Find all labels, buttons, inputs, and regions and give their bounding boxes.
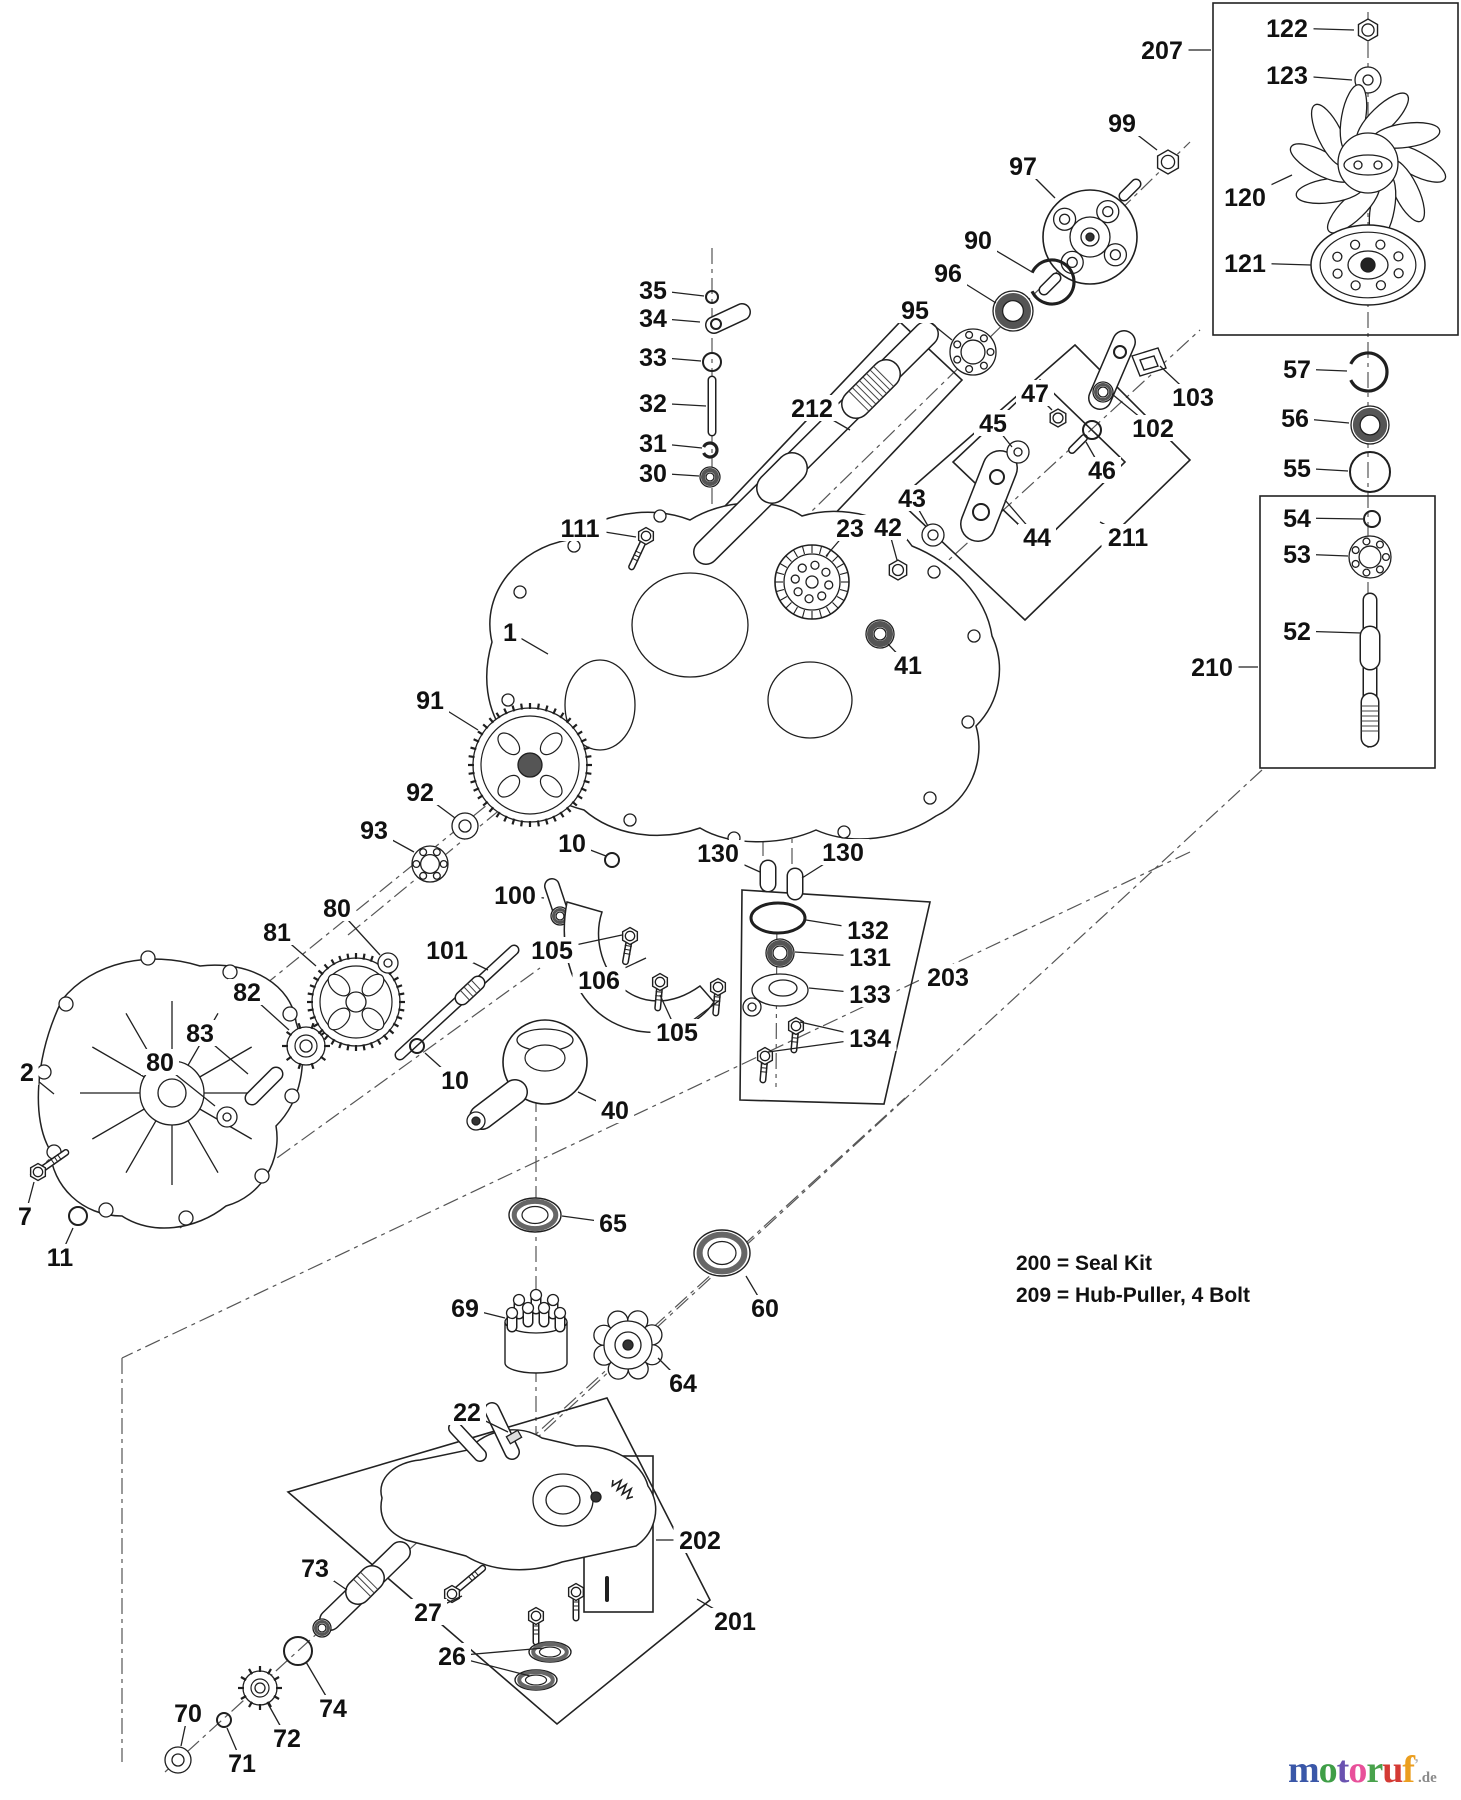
svg-text:133: 133 (849, 981, 891, 1009)
svg-text:43: 43 (898, 485, 926, 513)
bearing-95 (950, 329, 996, 375)
legend-notes: 200 = Seal Kit 209 = Hub-Puller, 4 Bolt (1016, 1248, 1250, 1312)
logo-letter: u (1382, 1749, 1402, 1791)
callout-131: 131 (795, 944, 897, 972)
nut-47 (1050, 409, 1066, 427)
callout-31: 31 (634, 430, 702, 458)
callout-44: 44 (1005, 500, 1056, 552)
svg-text:54: 54 (1283, 505, 1311, 533)
callout-210: 210 (1186, 654, 1259, 682)
callout-90: 90 (959, 227, 1032, 272)
callout-201: 201 (697, 1599, 762, 1636)
snapring-57 (1351, 353, 1387, 391)
svg-text:212: 212 (791, 395, 833, 423)
callout-99: 99 (1103, 110, 1157, 150)
svg-text:203: 203 (927, 964, 969, 992)
callout-64: 64 (658, 1358, 702, 1398)
washer-92 (452, 813, 478, 839)
svg-text:81: 81 (263, 919, 291, 947)
svg-text:101: 101 (426, 937, 468, 965)
callout-60: 60 (746, 1276, 784, 1323)
shaft-52-spline (1362, 702, 1379, 738)
hub-97 (1043, 184, 1137, 290)
svg-text:111: 111 (561, 515, 600, 543)
nut-99 (1158, 150, 1179, 174)
svg-text:31: 31 (639, 430, 667, 458)
ball-202 (591, 1492, 601, 1502)
shaft-212-spline (849, 367, 894, 412)
nut-122 (1358, 19, 1377, 41)
callout-92: 92 (401, 779, 455, 818)
washer-74 (284, 1637, 312, 1665)
callout-10: 10 (425, 1053, 474, 1095)
svg-text:93: 93 (360, 817, 388, 845)
callout-121: 121 (1219, 250, 1312, 278)
svg-text:34: 34 (639, 305, 667, 333)
svg-text:47: 47 (1021, 380, 1049, 408)
cup-26-2 (515, 1670, 557, 1690)
svg-text:69: 69 (451, 1295, 479, 1323)
callout-69: 69 (446, 1295, 505, 1323)
svg-text:99: 99 (1108, 110, 1136, 138)
brake-lever-2 (455, 1428, 480, 1455)
callout-123: 123 (1261, 62, 1353, 90)
shaft-212-collar (772, 468, 792, 488)
svg-text:26: 26 (438, 1643, 466, 1671)
logo-letter: r (1366, 1749, 1382, 1791)
svg-text:130: 130 (822, 839, 864, 867)
svg-text:202: 202 (679, 1527, 721, 1555)
callout-134: 134 (768, 1022, 897, 1053)
svg-text:74: 74 (319, 1695, 347, 1723)
svg-text:120: 120 (1224, 184, 1266, 212)
svg-text:207: 207 (1141, 37, 1183, 65)
callout-72: 72 (267, 1702, 306, 1753)
svg-text:45: 45 (979, 410, 1007, 438)
svg-text:35: 35 (639, 277, 667, 305)
callout-33: 33 (634, 344, 701, 372)
svg-text:56: 56 (1281, 405, 1309, 433)
callout-91: 91 (411, 687, 478, 730)
callout-101: 101 (421, 937, 489, 970)
svg-text:71: 71 (228, 1750, 256, 1778)
callouts: 2071221231201219997909695575655545352210… (14, 15, 1364, 1778)
logo-letter: t (1337, 1749, 1349, 1791)
svg-text:106: 106 (578, 967, 620, 995)
svg-text:57: 57 (1283, 356, 1311, 384)
legend-note-seal-kit: 200 = Seal Kit (1016, 1248, 1250, 1280)
svg-text:7: 7 (18, 1203, 32, 1231)
logo-suffix: .de (1418, 1770, 1437, 1786)
svg-text:64: 64 (669, 1370, 697, 1398)
svg-text:83: 83 (186, 1020, 214, 1048)
svg-text:46: 46 (1088, 457, 1116, 485)
oring-132 (751, 903, 805, 933)
svg-text:40: 40 (601, 1097, 629, 1125)
svg-text:123: 123 (1266, 62, 1308, 90)
seal-41 (866, 620, 894, 648)
svg-text:90: 90 (964, 227, 992, 255)
washer-70 (165, 1747, 191, 1773)
svg-text:210: 210 (1191, 654, 1233, 682)
callout-203: 203 (922, 964, 975, 992)
bolt-27 (445, 1568, 483, 1602)
logo-letter: f (1402, 1749, 1414, 1791)
svg-text:41: 41 (894, 652, 922, 680)
retainer-133-foot (743, 998, 761, 1016)
svg-text:201: 201 (714, 1608, 756, 1636)
callout-71: 71 (223, 1728, 261, 1778)
svg-text:97: 97 (1009, 153, 1037, 181)
rotor-64 (594, 1311, 662, 1379)
housing-1-bore-main (632, 573, 748, 677)
callout-7: 7 (14, 1182, 37, 1231)
pump-40 (467, 1020, 587, 1130)
svg-text:55: 55 (1283, 455, 1311, 483)
callout-97: 97 (1004, 153, 1055, 198)
clip-31 (704, 443, 717, 457)
callout-46: 46 (1083, 442, 1121, 485)
screw-134-2 (758, 1048, 773, 1080)
callout-40: 40 (578, 1092, 634, 1125)
logo-wordmark: motoruf (1288, 1749, 1414, 1791)
legend-note-hub-puller: 209 = Hub-Puller, 4 Bolt (1016, 1280, 1250, 1312)
cup-26-1 (529, 1642, 571, 1662)
block-69 (505, 1290, 567, 1374)
svg-text:130: 130 (697, 840, 739, 868)
retainer-133-hole (769, 980, 797, 996)
lever-102-bushing (1093, 382, 1113, 402)
callout-53: 53 (1278, 541, 1348, 569)
svg-text:80: 80 (146, 1049, 174, 1077)
callout-35: 35 (634, 277, 704, 305)
svg-text:102: 102 (1132, 415, 1174, 443)
ring-11 (69, 1207, 87, 1225)
svg-text:134: 134 (849, 1025, 891, 1053)
svg-text:105: 105 (656, 1019, 698, 1047)
svg-text:10: 10 (558, 830, 586, 858)
svg-text:122: 122 (1266, 15, 1308, 43)
svg-text:72: 72 (273, 1725, 301, 1753)
svg-text:96: 96 (934, 260, 962, 288)
shaft-73-tip (313, 1619, 331, 1637)
callout-132: 132 (806, 917, 895, 945)
svg-text:1: 1 (503, 619, 517, 647)
callout-103: 103 (1160, 366, 1220, 412)
housing-1-bore-side (768, 662, 852, 738)
poppet-26-1 (569, 1584, 584, 1619)
svg-text:82: 82 (233, 979, 261, 1007)
sprocket-72 (238, 1666, 282, 1710)
svg-text:91: 91 (416, 687, 444, 715)
svg-text:33: 33 (639, 344, 667, 372)
callout-34: 34 (634, 305, 700, 333)
callout-32: 32 (634, 390, 706, 418)
construction-lines (30, 12, 1368, 1772)
callout-55: 55 (1278, 455, 1348, 483)
callout-45: 45 (974, 410, 1012, 447)
svg-text:100: 100 (494, 882, 536, 910)
callout-133: 133 (809, 981, 897, 1009)
shaft-73-spline (354, 1572, 378, 1596)
svg-text:70: 70 (174, 1700, 202, 1728)
svg-text:32: 32 (639, 390, 667, 418)
svg-text:131: 131 (849, 944, 891, 972)
pulley-121 (1311, 225, 1425, 305)
svg-text:60: 60 (751, 1295, 779, 1323)
screw-105-3 (711, 979, 726, 1013)
callout-130: 130 (692, 840, 761, 872)
callout-105: 105 (526, 935, 623, 965)
svg-text:42: 42 (874, 514, 902, 542)
parts-diagram-page: 2071221231201219997909695575655545352210… (0, 0, 1461, 1800)
screw-105-1 (623, 928, 638, 962)
callout-30: 30 (634, 460, 699, 488)
svg-text:22: 22 (453, 1399, 481, 1427)
svg-text:211: 211 (1108, 524, 1148, 552)
seal-30 (700, 467, 720, 487)
bearing-96 (993, 291, 1033, 331)
bearing-56 (1351, 406, 1389, 444)
callout-65: 65 (562, 1210, 632, 1238)
seal-60 (694, 1230, 750, 1276)
callout-211: 211 (1100, 522, 1155, 552)
svg-text:23: 23 (836, 515, 864, 543)
washer-43 (922, 524, 944, 546)
callout-100: 100 (489, 882, 545, 910)
svg-text:105: 105 (531, 937, 573, 965)
filter-23 (775, 545, 849, 619)
svg-text:65: 65 (599, 1210, 627, 1238)
callout-120: 120 (1219, 175, 1293, 212)
ring-55 (1350, 452, 1390, 492)
logo-letter: o (1348, 1749, 1366, 1791)
svg-text:95: 95 (901, 297, 929, 325)
motoruf-logo: motoruf’.de (1288, 1748, 1437, 1792)
svg-text:73: 73 (301, 1555, 329, 1583)
svg-text:44: 44 (1023, 524, 1051, 552)
svg-text:11: 11 (47, 1244, 74, 1272)
svg-text:10: 10 (441, 1067, 469, 1095)
ring-10-upper (605, 853, 619, 867)
svg-text:30: 30 (639, 460, 667, 488)
svg-text:52: 52 (1283, 618, 1311, 646)
poppet-26-2 (529, 1608, 544, 1643)
callout-52: 52 (1278, 618, 1361, 646)
washer-80-left (217, 1107, 237, 1127)
logo-letter: o (1319, 1749, 1337, 1791)
cup-131 (766, 939, 794, 967)
ring-71 (217, 1713, 231, 1727)
seal-65 (509, 1198, 561, 1232)
callout-10: 10 (553, 830, 606, 858)
bearing-93 (412, 846, 448, 882)
callout-130: 130 (802, 839, 870, 878)
ring-54 (1364, 511, 1380, 527)
callout-73: 73 (296, 1555, 347, 1590)
valve-body-port-inner (546, 1486, 580, 1514)
shaft-101-spline (460, 980, 480, 1000)
callout-56: 56 (1276, 405, 1349, 433)
svg-text:80: 80 (323, 895, 351, 923)
svg-text:103: 103 (1172, 384, 1214, 412)
callout-11: 11 (41, 1228, 79, 1272)
callout-57: 57 (1278, 356, 1347, 384)
svg-text:53: 53 (1283, 541, 1311, 569)
svg-text:2: 2 (20, 1059, 34, 1087)
callout-202: 202 (656, 1527, 727, 1555)
callout-70: 70 (169, 1700, 207, 1746)
callout-93: 93 (355, 817, 414, 852)
callout-207: 207 (1136, 37, 1212, 65)
callout-96: 96 (929, 260, 996, 303)
callout-81: 81 (258, 919, 316, 966)
bearing-53 (1349, 536, 1391, 578)
callout-80: 80 (318, 895, 380, 955)
callout-122: 122 (1261, 15, 1355, 43)
svg-text:132: 132 (847, 917, 889, 945)
svg-text:92: 92 (406, 779, 434, 807)
svg-text:121: 121 (1224, 250, 1266, 278)
nut-42 (889, 560, 906, 580)
washer-80-right (378, 953, 398, 973)
callout-74: 74 (306, 1662, 352, 1723)
pin-46 (1072, 438, 1084, 450)
callout-47: 47 (1016, 380, 1054, 410)
svg-text:27: 27 (414, 1599, 442, 1627)
logo-letter: m (1288, 1749, 1319, 1791)
callout-54: 54 (1278, 505, 1363, 533)
exploded-parts-diagram: 2071221231201219997909695575655545352210… (0, 0, 1461, 1800)
